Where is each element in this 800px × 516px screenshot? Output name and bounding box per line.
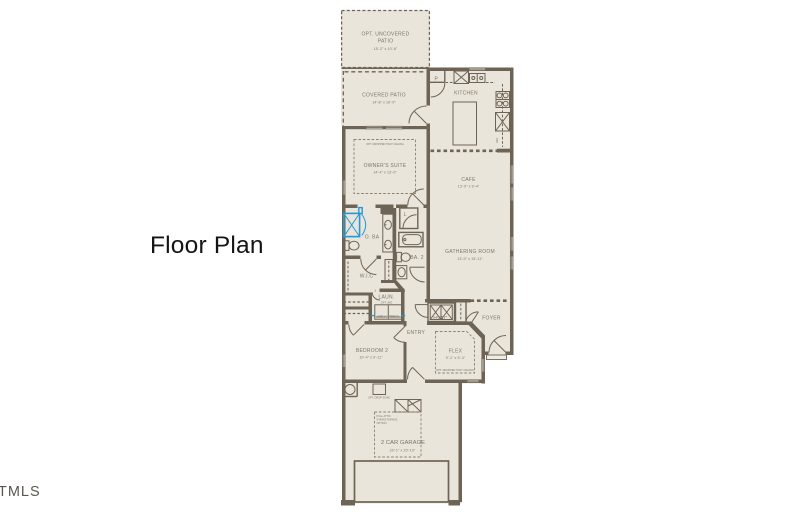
svg-text:L: L [404,212,407,218]
svg-text:BA. 2: BA. 2 [410,255,423,261]
svg-text:OPT. W/D: OPT. W/D [381,300,393,304]
svg-text:LAUN.: LAUN. [379,295,395,301]
svg-text:ENTRY: ENTRY [407,330,426,336]
svg-text:14'-4" x 13'-0": 14'-4" x 13'-0" [373,171,397,175]
svg-text:STAIR/STORAGE: STAIR/STORAGE [377,417,398,421]
svg-text:OPTION: OPTION [377,421,387,425]
svg-text:FOYER: FOYER [482,316,501,322]
svg-text:2 CAR GARAGE: 2 CAR GARAGE [381,440,425,446]
svg-text:GATHERING ROOM: GATHERING ROOM [445,249,495,255]
svg-text:W.I.C: W.I.C [360,274,374,280]
svg-text:FLEX: FLEX [449,349,463,355]
svg-text:O. BA: O. BA [365,234,380,240]
svg-text:OPT. UNCOVERED: OPT. UNCOVERED [362,32,410,38]
svg-text:13'-9" x 15'-11": 13'-9" x 15'-11" [457,257,483,261]
svg-text:P: P [435,77,439,83]
svg-text:S: S [375,289,377,293]
svg-text:KITCHEN: KITCHEN [454,91,478,97]
svg-text:PATIO: PATIO [378,39,394,45]
svg-text:14'-8" x 10'-0": 14'-8" x 10'-0" [372,101,396,105]
svg-text:9'-1" x 9'-4": 9'-1" x 9'-4" [446,356,466,360]
svg-text:10'-4" x 9'-11": 10'-4" x 9'-11" [359,356,383,360]
svg-text:OPT. DROPPED TRAY CEILING: OPT. DROPPED TRAY CEILING [436,368,474,372]
svg-text:REF.: REF. [495,137,499,143]
svg-text:OPT. DROPPED TRAY CEILING: OPT. DROPPED TRAY CEILING [366,142,404,146]
svg-text:(OPT.) CABINETS: (OPT.) CABINETS [377,314,398,318]
svg-text:CAFE: CAFE [461,177,476,183]
svg-text:OWNER'S SUITE: OWNER'S SUITE [364,163,407,169]
svg-text:15'-2" x 10'-6": 15'-2" x 10'-6" [374,47,398,51]
svg-text:BEDROOM 2: BEDROOM 2 [356,348,388,354]
svg-text:20'-1" x 20'-10": 20'-1" x 20'-10" [390,449,416,453]
svg-text:OPT. DROP ZONE: OPT. DROP ZONE [368,395,390,399]
svg-text:COVERED PATIO: COVERED PATIO [362,93,406,99]
svg-text:13'-9" x 9'-4": 13'-9" x 9'-4" [458,185,480,189]
svg-text:HVAC: HVAC [433,316,448,322]
svg-text:PULL ATTIC: PULL ATTIC [377,414,391,418]
